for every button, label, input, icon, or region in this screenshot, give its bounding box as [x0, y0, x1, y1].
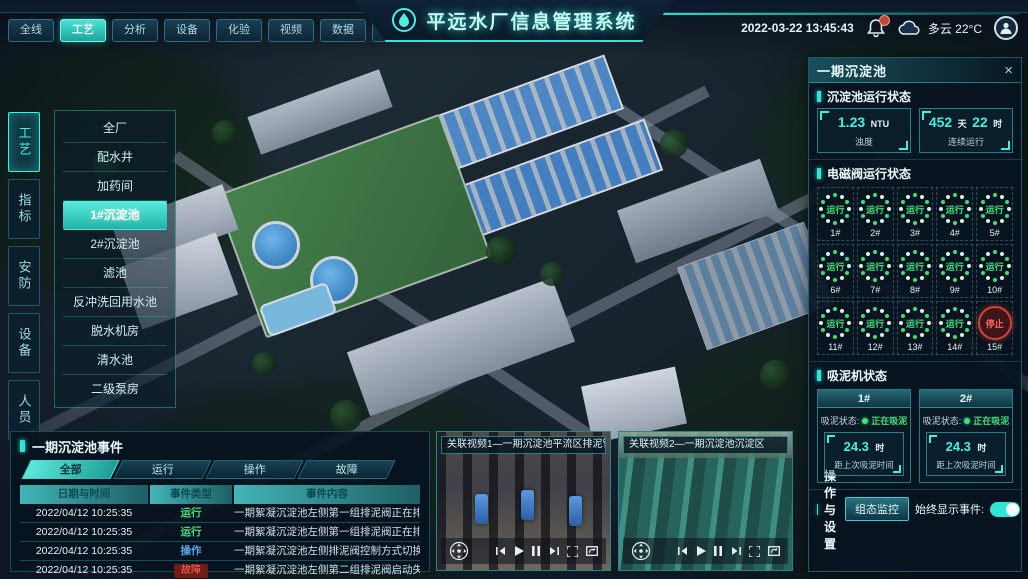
- scraper-value: 24.3: [946, 439, 971, 454]
- scraper-caption: 距上次吸泥时间: [927, 459, 1005, 471]
- video-pump: [521, 490, 534, 520]
- skip-forward-icon[interactable]: [548, 546, 559, 556]
- valve-id: 4#: [937, 228, 972, 238]
- menu-item-tuoshuijifang[interactable]: 脱水机房: [63, 317, 167, 346]
- event-filter-tabs: 全部 运行 操作 故障: [26, 460, 420, 479]
- notification-bell-icon[interactable]: [866, 18, 886, 38]
- scraper-cards: 1# 吸泥状态: 正在吸泥 24.3 时 距上次吸泥时间 2# 吸泥状态:: [817, 389, 1013, 483]
- event-tab-run[interactable]: 运行: [113, 460, 211, 479]
- tab-gongyi[interactable]: 工艺: [60, 19, 106, 42]
- event-table-header: 日期与时间 事件类型 事件内容: [20, 485, 420, 504]
- show-events-label: 始终显示事件:: [915, 501, 984, 517]
- scraper-unit: 时: [977, 443, 986, 453]
- event-content: 一期絮凝沉淀池左侧第一组排泥阀正在排泥: [234, 504, 420, 522]
- valve-state: 运行: [898, 306, 932, 340]
- left-tab-zhibiao[interactable]: 指标: [8, 179, 40, 239]
- map-tree: [540, 262, 564, 286]
- turbidity-stat: 1.23 NTU 浊度: [817, 108, 911, 153]
- valve-id: 13#: [898, 342, 933, 352]
- section-valves: 电磁阀运行状态 运行1# 运行2# 运行3# 运行4# 运行5# 运行6# 运行…: [809, 160, 1021, 362]
- uptime-stat: 452 天 22 时 连续运行: [919, 108, 1013, 153]
- valve-status: 运行11#: [817, 301, 854, 355]
- top-header: 全线 工艺 分析 设备 化验 视频 数据 工单 系统 平远水厂信息管理系统 20…: [0, 0, 1028, 46]
- event-tab-operate[interactable]: 操作: [205, 460, 303, 479]
- valve-status: 运行2#: [857, 187, 894, 241]
- snapshot-icon[interactable]: [586, 546, 598, 556]
- uptime-hours-unit: 时: [993, 119, 1002, 129]
- valve-id: 12#: [858, 342, 893, 352]
- col-header-content: 事件内容: [234, 485, 420, 504]
- notification-badge: [879, 15, 890, 26]
- process-area-menu: 全厂 配水井 加药间 1#沉淀池 2#沉淀池 滤池 反冲洗回用水池 脱水机房 清…: [54, 110, 176, 408]
- detail-panel: 一期沉淀池 × 沉淀池运行状态 1.23 NTU 浊度 452 天 22 时 连…: [808, 57, 1022, 572]
- valve-state: 运行: [818, 249, 852, 283]
- valve-state: 运行: [898, 192, 932, 226]
- section-title: 操作与设置: [817, 499, 839, 519]
- uptime-hours: 22: [972, 114, 988, 130]
- menu-item-qingshuichi[interactable]: 清水池: [63, 346, 167, 375]
- weather-text: 多云 22°C: [928, 20, 982, 37]
- map-tree: [760, 360, 790, 390]
- section-title: 吸泥机状态: [817, 365, 1013, 385]
- event-content: 一期絮凝沉淀池左侧第二组排泥阀启动失败: [234, 561, 420, 579]
- valve-state: 运行: [978, 249, 1012, 283]
- video-controls: [441, 538, 606, 564]
- event-type: 故障: [174, 564, 208, 578]
- detail-panel-title: 一期沉淀池: [817, 61, 887, 80]
- uptime-days-unit: 天: [958, 119, 967, 129]
- valve-id: 3#: [898, 228, 933, 238]
- valve-state: 运行: [898, 249, 932, 283]
- play-icon[interactable]: [515, 546, 524, 556]
- valve-status: 运行7#: [857, 244, 894, 298]
- col-header-type: 事件类型: [150, 485, 232, 504]
- weather-widget: 多云 22°C: [898, 20, 982, 37]
- video-pump: [569, 496, 582, 526]
- scraper-state-label: 吸泥状态:: [821, 414, 860, 427]
- menu-item-fanchongxi[interactable]: 反冲洗回用水池: [63, 288, 167, 317]
- left-tab-shebei[interactable]: 设备: [8, 313, 40, 373]
- menu-item-quanchang[interactable]: 全厂: [63, 114, 167, 143]
- valve-status: 运行4#: [936, 187, 973, 241]
- section-title: 电磁阀运行状态: [817, 163, 1013, 183]
- table-row[interactable]: 2022/04/12 10:25:35 运行 一期絮凝沉淀池左侧第一组排泥阀正在…: [20, 523, 420, 542]
- snapshot-icon[interactable]: [768, 546, 780, 556]
- valve-state: 运行: [938, 249, 972, 283]
- video-panel-2: 关联视频2—一期沉淀池沉淀区: [618, 431, 793, 571]
- detail-panel-header: 一期沉淀池 ×: [809, 58, 1021, 83]
- app-logo-icon: [391, 7, 417, 33]
- scraper-card-1: 1# 吸泥状态: 正在吸泥 24.3 时 距上次吸泥时间: [817, 389, 911, 483]
- page-title: 平远水厂信息管理系统: [426, 7, 636, 34]
- valve-state: 运行: [858, 192, 892, 226]
- map-tree: [212, 120, 238, 146]
- valve-state: 停止: [980, 308, 1010, 338]
- menu-item-peishuijing[interactable]: 配水井: [63, 143, 167, 172]
- event-tab-fault[interactable]: 故障: [297, 460, 395, 479]
- section-title: 沉淀池运行状态: [817, 86, 1013, 106]
- uptime-days: 452: [929, 114, 952, 130]
- valve-id: 11#: [818, 342, 853, 352]
- valve-status: 运行8#: [897, 244, 934, 298]
- valve-id: 14#: [937, 342, 972, 352]
- scraper-value: 24.3: [844, 439, 869, 454]
- valve-state: 运行: [938, 306, 972, 340]
- valve-status: 运行14#: [936, 301, 973, 355]
- scada-monitor-button[interactable]: 组态监控: [845, 497, 909, 521]
- skip-back-icon[interactable]: [496, 546, 507, 556]
- tab-shuju[interactable]: 数据: [320, 19, 366, 42]
- table-row[interactable]: 2022/04/12 10:25:35 运行 一期絮凝沉淀池左侧第一组排泥阀正在…: [20, 504, 420, 523]
- valve-status: 运行3#: [897, 187, 934, 241]
- event-content: 一期絮凝沉淀池左侧第一组排泥阀正在排泥: [234, 523, 420, 541]
- valve-id: 10#: [977, 285, 1012, 295]
- menu-item-1-chendianchi[interactable]: 1#沉淀池: [63, 201, 167, 230]
- valve-id: 6#: [818, 285, 853, 295]
- video-controls: [623, 538, 788, 564]
- event-content: 一期絮凝沉淀池左侧排泥阀控制方式切换为手动: [234, 542, 420, 560]
- valve-status: 运行9#: [936, 244, 973, 298]
- tab-fenxi[interactable]: 分析: [112, 19, 158, 42]
- map-tree: [330, 400, 362, 432]
- turbidity-value: 1.23: [838, 114, 865, 130]
- valve-id: 8#: [898, 285, 933, 295]
- skip-forward-icon[interactable]: [730, 546, 741, 556]
- scraper-state: 正在吸泥: [871, 414, 907, 427]
- cloud-icon: [898, 20, 922, 36]
- scraper-id: 1#: [818, 390, 910, 408]
- valve-grid: 运行1# 运行2# 运行3# 运行4# 运行5# 运行6# 运行7# 运行8# …: [817, 187, 1013, 355]
- valve-status: 运行10#: [976, 244, 1013, 298]
- left-tab-anfang[interactable]: 安防: [8, 246, 40, 306]
- fullscreen-icon[interactable]: [749, 546, 760, 557]
- valve-state: 运行: [978, 192, 1012, 226]
- valve-id: 9#: [937, 285, 972, 295]
- scraper-state: 正在吸泥: [973, 414, 1009, 427]
- section-ops: 操作与设置 组态监控 始终显示事件:: [809, 490, 1021, 527]
- tab-quanxian[interactable]: 全线: [8, 19, 54, 42]
- skip-back-icon[interactable]: [678, 546, 689, 556]
- menu-item-erjibengfang[interactable]: 二级泵房: [63, 375, 167, 404]
- turbidity-unit: NTU: [871, 119, 890, 129]
- left-tab-gongyi[interactable]: 工艺: [8, 112, 40, 172]
- video-title: 关联视频2—一期沉淀池沉淀区: [623, 436, 788, 454]
- valve-state: 运行: [858, 306, 892, 340]
- scraper-state-label: 吸泥状态:: [923, 414, 962, 427]
- valve-state: 运行: [818, 306, 852, 340]
- scraper-unit: 时: [875, 443, 884, 453]
- pause-icon[interactable]: [714, 546, 722, 556]
- events-panel: 一期沉淀池事件 全部 运行 操作 故障 日期与时间 事件类型 事件内容 2022…: [10, 431, 430, 572]
- valve-id: 2#: [858, 228, 893, 238]
- video-pump: [475, 494, 488, 524]
- tab-shebei[interactable]: 设备: [164, 19, 210, 42]
- fullscreen-icon[interactable]: [567, 546, 578, 557]
- turbidity-label: 浊度: [820, 135, 908, 148]
- valve-status-stopped: 停止15#: [976, 301, 1013, 355]
- show-events-toggle[interactable]: [990, 502, 1020, 517]
- scraper-card-2: 2# 吸泥状态: 正在吸泥 24.3 时 距上次吸泥时间: [919, 389, 1013, 483]
- ptz-control-icon[interactable]: [631, 541, 651, 561]
- ptz-control-icon[interactable]: [449, 541, 469, 561]
- pause-icon[interactable]: [532, 546, 540, 556]
- event-time: 2022/04/12 10:25:35: [20, 561, 148, 579]
- menu-item-lvchi[interactable]: 滤池: [63, 259, 167, 288]
- event-time: 2022/04/12 10:25:35: [20, 523, 148, 541]
- valve-status: 运行1#: [817, 187, 854, 241]
- map-tree: [486, 236, 516, 266]
- status-dot-icon: [862, 418, 868, 424]
- play-icon[interactable]: [697, 546, 706, 556]
- event-tab-all[interactable]: 全部: [21, 460, 119, 479]
- valve-status: 运行5#: [976, 187, 1013, 241]
- valve-id: 5#: [977, 228, 1012, 238]
- valve-status: 运行13#: [897, 301, 934, 355]
- section-scraper: 吸泥机状态 1# 吸泥状态: 正在吸泥 24.3 时 距上次吸泥时间 2#: [809, 362, 1021, 490]
- app-title-bar: 平远水厂信息管理系统: [354, 0, 674, 42]
- events-panel-title: 一期沉淀池事件: [20, 436, 420, 456]
- valve-id: 1#: [818, 228, 853, 238]
- table-row[interactable]: 2022/04/12 10:25:35 操作 一期絮凝沉淀池左侧排泥阀控制方式切…: [20, 542, 420, 561]
- scraper-caption: 距上次吸泥时间: [825, 459, 903, 471]
- left-category-tabs: 工艺 指标 安防 设备 人员: [8, 112, 40, 440]
- map-tree: [660, 130, 688, 158]
- valve-status: 运行6#: [817, 244, 854, 298]
- map-tree: [252, 352, 276, 376]
- valve-state: 运行: [938, 192, 972, 226]
- table-row[interactable]: 2022/04/12 10:25:35 故障 一期絮凝沉淀池左侧第二组排泥阀启动…: [20, 561, 420, 579]
- valve-status: 运行12#: [857, 301, 894, 355]
- event-time: 2022/04/12 10:25:35: [20, 504, 148, 522]
- header-right-cluster: 2022-03-22 13:45:43 多云 22°C: [741, 16, 1018, 40]
- col-header-time: 日期与时间: [20, 485, 148, 504]
- event-type: 运行: [181, 507, 202, 519]
- run-status-stats: 1.23 NTU 浊度 452 天 22 时 连续运行: [817, 108, 1013, 153]
- event-type: 操作: [181, 545, 202, 557]
- valve-state: 运行: [818, 192, 852, 226]
- video-panel-1: 关联视频1—一期沉淀池平流区排泥管廊: [436, 431, 611, 571]
- scraper-stat: 24.3 时 距上次吸泥时间: [824, 432, 904, 476]
- tab-huayan[interactable]: 化验: [216, 19, 262, 42]
- menu-item-2-chendianchi[interactable]: 2#沉淀池: [63, 230, 167, 259]
- event-time: 2022/04/12 10:25:35: [20, 542, 148, 560]
- valve-state: 运行: [858, 249, 892, 283]
- valve-id: 7#: [858, 285, 893, 295]
- event-type: 运行: [181, 526, 202, 538]
- close-icon[interactable]: ×: [1004, 63, 1013, 78]
- scraper-id: 2#: [920, 390, 1012, 408]
- uptime-label: 连续运行: [922, 135, 1010, 148]
- map-round-pool: [252, 221, 300, 269]
- status-dot-icon: [964, 418, 970, 424]
- section-run-status: 沉淀池运行状态 1.23 NTU 浊度 452 天 22 时 连续运行: [809, 83, 1021, 160]
- datetime: 2022-03-22 13:45:43: [741, 21, 854, 35]
- menu-item-jiayaojian[interactable]: 加药间: [63, 172, 167, 201]
- video-title: 关联视频1—一期沉淀池平流区排泥管廊: [441, 436, 606, 454]
- header-accent-line: [640, 13, 1020, 15]
- tab-shipin[interactable]: 视频: [268, 19, 314, 42]
- valve-id: 15#: [977, 342, 1012, 352]
- scraper-stat: 24.3 时 距上次吸泥时间: [926, 432, 1006, 476]
- user-avatar[interactable]: [994, 16, 1018, 40]
